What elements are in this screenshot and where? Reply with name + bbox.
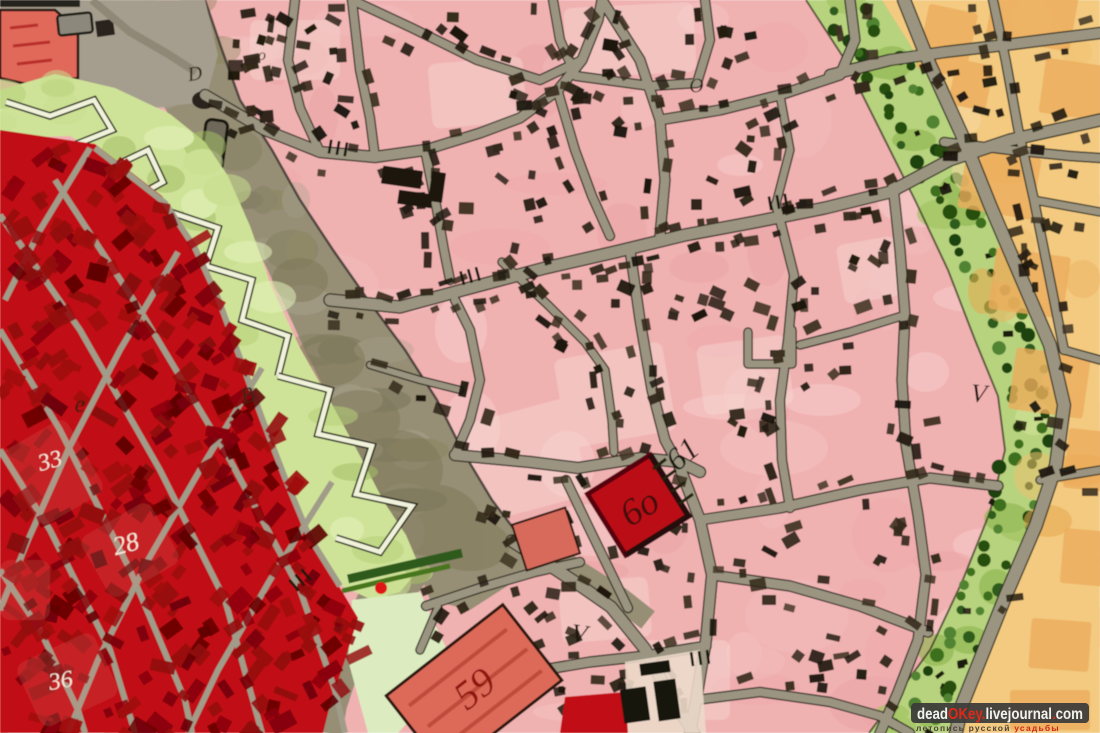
svg-text:deadOKey.livejournal.com: deadOKey.livejournal.com (917, 706, 1083, 723)
svg-text:e: e (75, 392, 86, 418)
svg-text:O: O (688, 74, 704, 97)
svg-text:летопись русской усадьбы: летопись русской усадьбы (916, 723, 1060, 733)
svg-text:o: o (258, 47, 266, 64)
svg-text:36: 36 (46, 666, 75, 696)
